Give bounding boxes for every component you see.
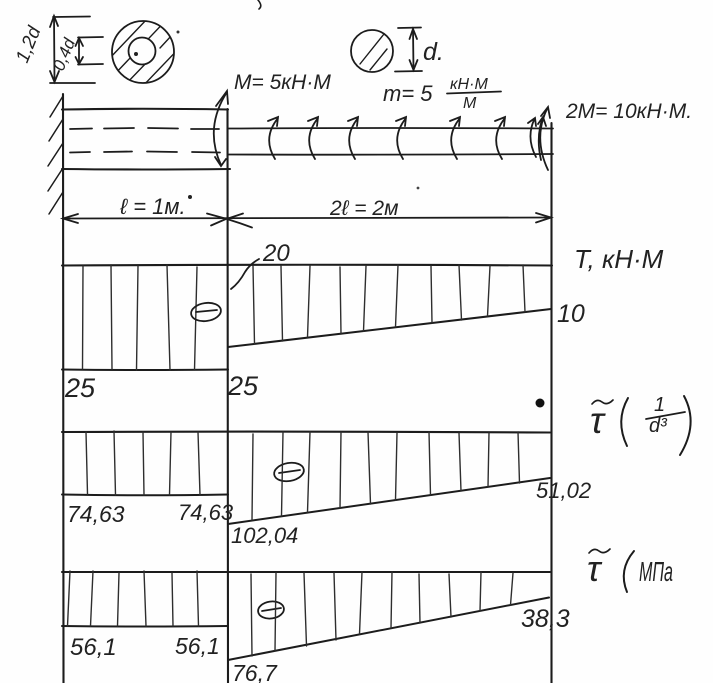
svg-text:74,63: 74,63 bbox=[67, 501, 125, 527]
svg-text:20: 20 bbox=[262, 240, 290, 267]
svg-text:102,04: 102,04 bbox=[231, 523, 298, 548]
svg-text:τ: τ bbox=[587, 548, 603, 589]
svg-text:1,2d: 1,2d bbox=[12, 22, 46, 65]
svg-text:МПа: МПа bbox=[639, 556, 673, 587]
svg-text:T, кН·М: T, кН·М bbox=[574, 244, 664, 274]
svg-text:56,1: 56,1 bbox=[70, 634, 117, 661]
svg-text:d³: d³ bbox=[649, 415, 668, 437]
svg-text:1: 1 bbox=[654, 394, 665, 416]
svg-text:56,1: 56,1 bbox=[175, 633, 220, 659]
svg-text:τ: τ bbox=[590, 400, 606, 441]
svg-text:М: М bbox=[463, 95, 477, 112]
svg-text:d.: d. bbox=[423, 38, 444, 66]
svg-text:M= 5кН·М: M= 5кН·М bbox=[234, 71, 331, 94]
svg-text:51,02: 51,02 bbox=[536, 478, 591, 503]
svg-text:74,63: 74,63 bbox=[178, 500, 234, 525]
svg-text:2ℓ = 2м: 2ℓ = 2м bbox=[329, 197, 398, 220]
svg-text:10: 10 bbox=[557, 300, 585, 328]
svg-text:38,3: 38,3 bbox=[521, 605, 570, 633]
svg-text:2M= 10кН·М.: 2M= 10кН·М. bbox=[565, 100, 692, 123]
svg-text:25: 25 bbox=[64, 373, 96, 403]
svg-text:m= 5: m= 5 bbox=[383, 81, 433, 106]
svg-text:25: 25 bbox=[227, 371, 259, 401]
svg-text:ℓ = 1м.: ℓ = 1м. bbox=[119, 194, 186, 219]
svg-text:кН·М: кН·М bbox=[450, 76, 488, 93]
svg-text:76,7: 76,7 bbox=[232, 660, 278, 683]
